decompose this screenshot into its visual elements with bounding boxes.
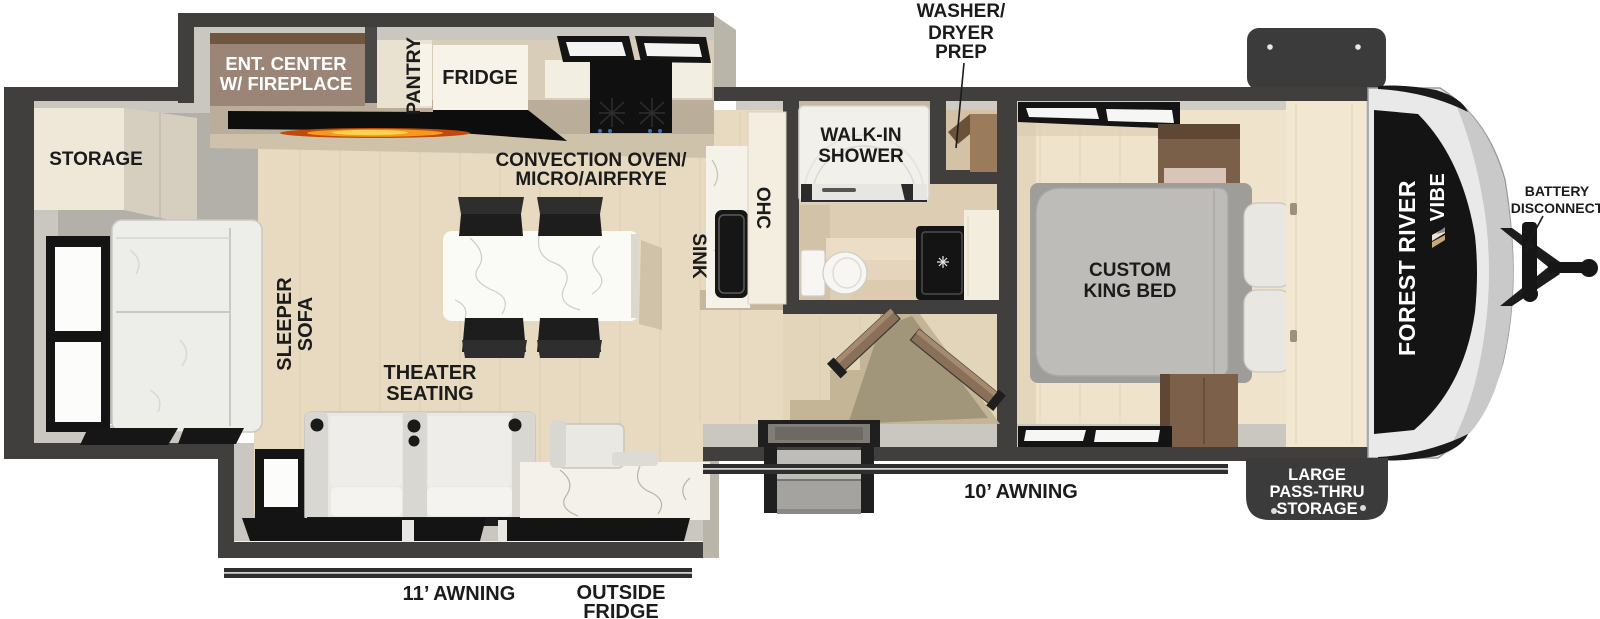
svg-text:STORAGE: STORAGE bbox=[49, 149, 143, 170]
svg-text:ENT. CENTER: ENT. CENTER bbox=[225, 53, 346, 74]
svg-text:11’ AWNING: 11’ AWNING bbox=[403, 583, 516, 605]
svg-text:SLEEPER: SLEEPER bbox=[274, 277, 296, 371]
svg-text:DISCONNECT: DISCONNECT bbox=[1511, 200, 1600, 216]
svg-text:DRYER: DRYER bbox=[928, 23, 994, 44]
svg-text:LARGE: LARGE bbox=[1288, 466, 1346, 484]
svg-text:VIBE: VIBE bbox=[1427, 173, 1449, 222]
svg-text:MICRO/AIRFRYE: MICRO/AIRFRYE bbox=[515, 169, 666, 190]
svg-text:PANTRY: PANTRY bbox=[403, 37, 425, 115]
svg-text:SHOWER: SHOWER bbox=[818, 146, 904, 167]
svg-text:SINK: SINK bbox=[688, 233, 709, 279]
svg-text:10’ AWNING: 10’ AWNING bbox=[964, 481, 1078, 503]
svg-text:KING BED: KING BED bbox=[1084, 281, 1177, 302]
svg-text:WALK-IN: WALK-IN bbox=[820, 125, 901, 146]
svg-text:THEATER: THEATER bbox=[384, 362, 478, 384]
svg-text:BATTERY: BATTERY bbox=[1525, 183, 1590, 199]
svg-text:SOFA: SOFA bbox=[295, 297, 317, 351]
svg-text:CUSTOM: CUSTOM bbox=[1089, 260, 1171, 281]
svg-text:FOREST RIVER: FOREST RIVER bbox=[1394, 180, 1420, 356]
svg-text:STORAGE: STORAGE bbox=[1276, 500, 1357, 518]
svg-text:W/ FIREPLACE: W/ FIREPLACE bbox=[220, 73, 353, 94]
svg-text:FRIDGE: FRIDGE bbox=[583, 601, 659, 619]
svg-text:OHC: OHC bbox=[752, 187, 773, 230]
svg-text:SEATING: SEATING bbox=[386, 383, 473, 405]
svg-text:PASS-THRU: PASS-THRU bbox=[1269, 483, 1364, 501]
svg-text:PREP: PREP bbox=[935, 42, 987, 63]
svg-text:FRIDGE: FRIDGE bbox=[442, 67, 518, 89]
svg-text:WASHER/: WASHER/ bbox=[917, 1, 1006, 22]
svg-text:CONVECTION OVEN/: CONVECTION OVEN/ bbox=[495, 150, 687, 171]
